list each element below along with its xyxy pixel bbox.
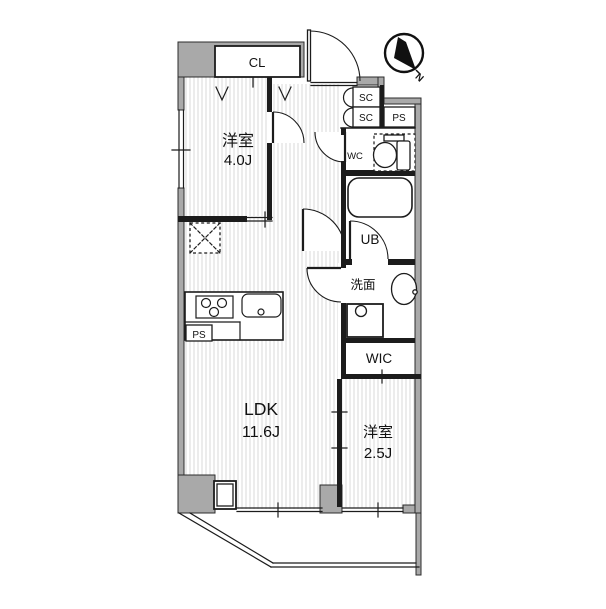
floorplan: N CL SC SC PS WC UB 洗面 WIC PS 洋室 4.0J LD… bbox=[0, 0, 606, 609]
shoe-cabinet-doors bbox=[344, 88, 354, 127]
balcony-side-wall bbox=[416, 513, 421, 575]
label-washroom: 洗面 bbox=[350, 278, 375, 292]
label-pipe-space-entry: PS bbox=[392, 113, 406, 124]
refrigerator-space bbox=[190, 223, 220, 253]
floorplan-drawing: N CL SC SC PS WC UB 洗面 WIC PS 洋室 4.0J LD… bbox=[0, 0, 606, 609]
label-wc: WC bbox=[347, 151, 363, 162]
label-walk-in-closet: WIC bbox=[366, 351, 392, 366]
washer-pan bbox=[347, 304, 383, 337]
label-pipe-space-kitchen: PS bbox=[192, 330, 206, 341]
bathtub bbox=[348, 178, 412, 217]
label-room1-size: 4.0J bbox=[224, 152, 252, 169]
wash-basin bbox=[392, 274, 418, 305]
label-closet: CL bbox=[249, 55, 266, 70]
pillar-box bbox=[214, 481, 236, 509]
label-ldk-size: 11.6J bbox=[242, 424, 280, 441]
stove bbox=[196, 296, 233, 318]
label-room1-name: 洋室 bbox=[222, 132, 254, 150]
label-ldk-name: LDK bbox=[244, 399, 278, 419]
floor-room-2-5j bbox=[342, 379, 415, 508]
label-shoe-cabinet-upper: SC bbox=[359, 93, 373, 104]
label-unit-bath: UB bbox=[361, 232, 380, 247]
label-room2-size: 2.5J bbox=[364, 445, 392, 462]
kitchen-sink bbox=[242, 294, 281, 317]
label-shoe-cabinet-lower: SC bbox=[359, 113, 373, 124]
compass-north-label: N bbox=[413, 72, 426, 85]
label-room2-name: 洋室 bbox=[363, 424, 393, 441]
compass: N bbox=[385, 34, 425, 85]
floor-ldk bbox=[184, 217, 338, 509]
entrance-door bbox=[308, 30, 361, 81]
